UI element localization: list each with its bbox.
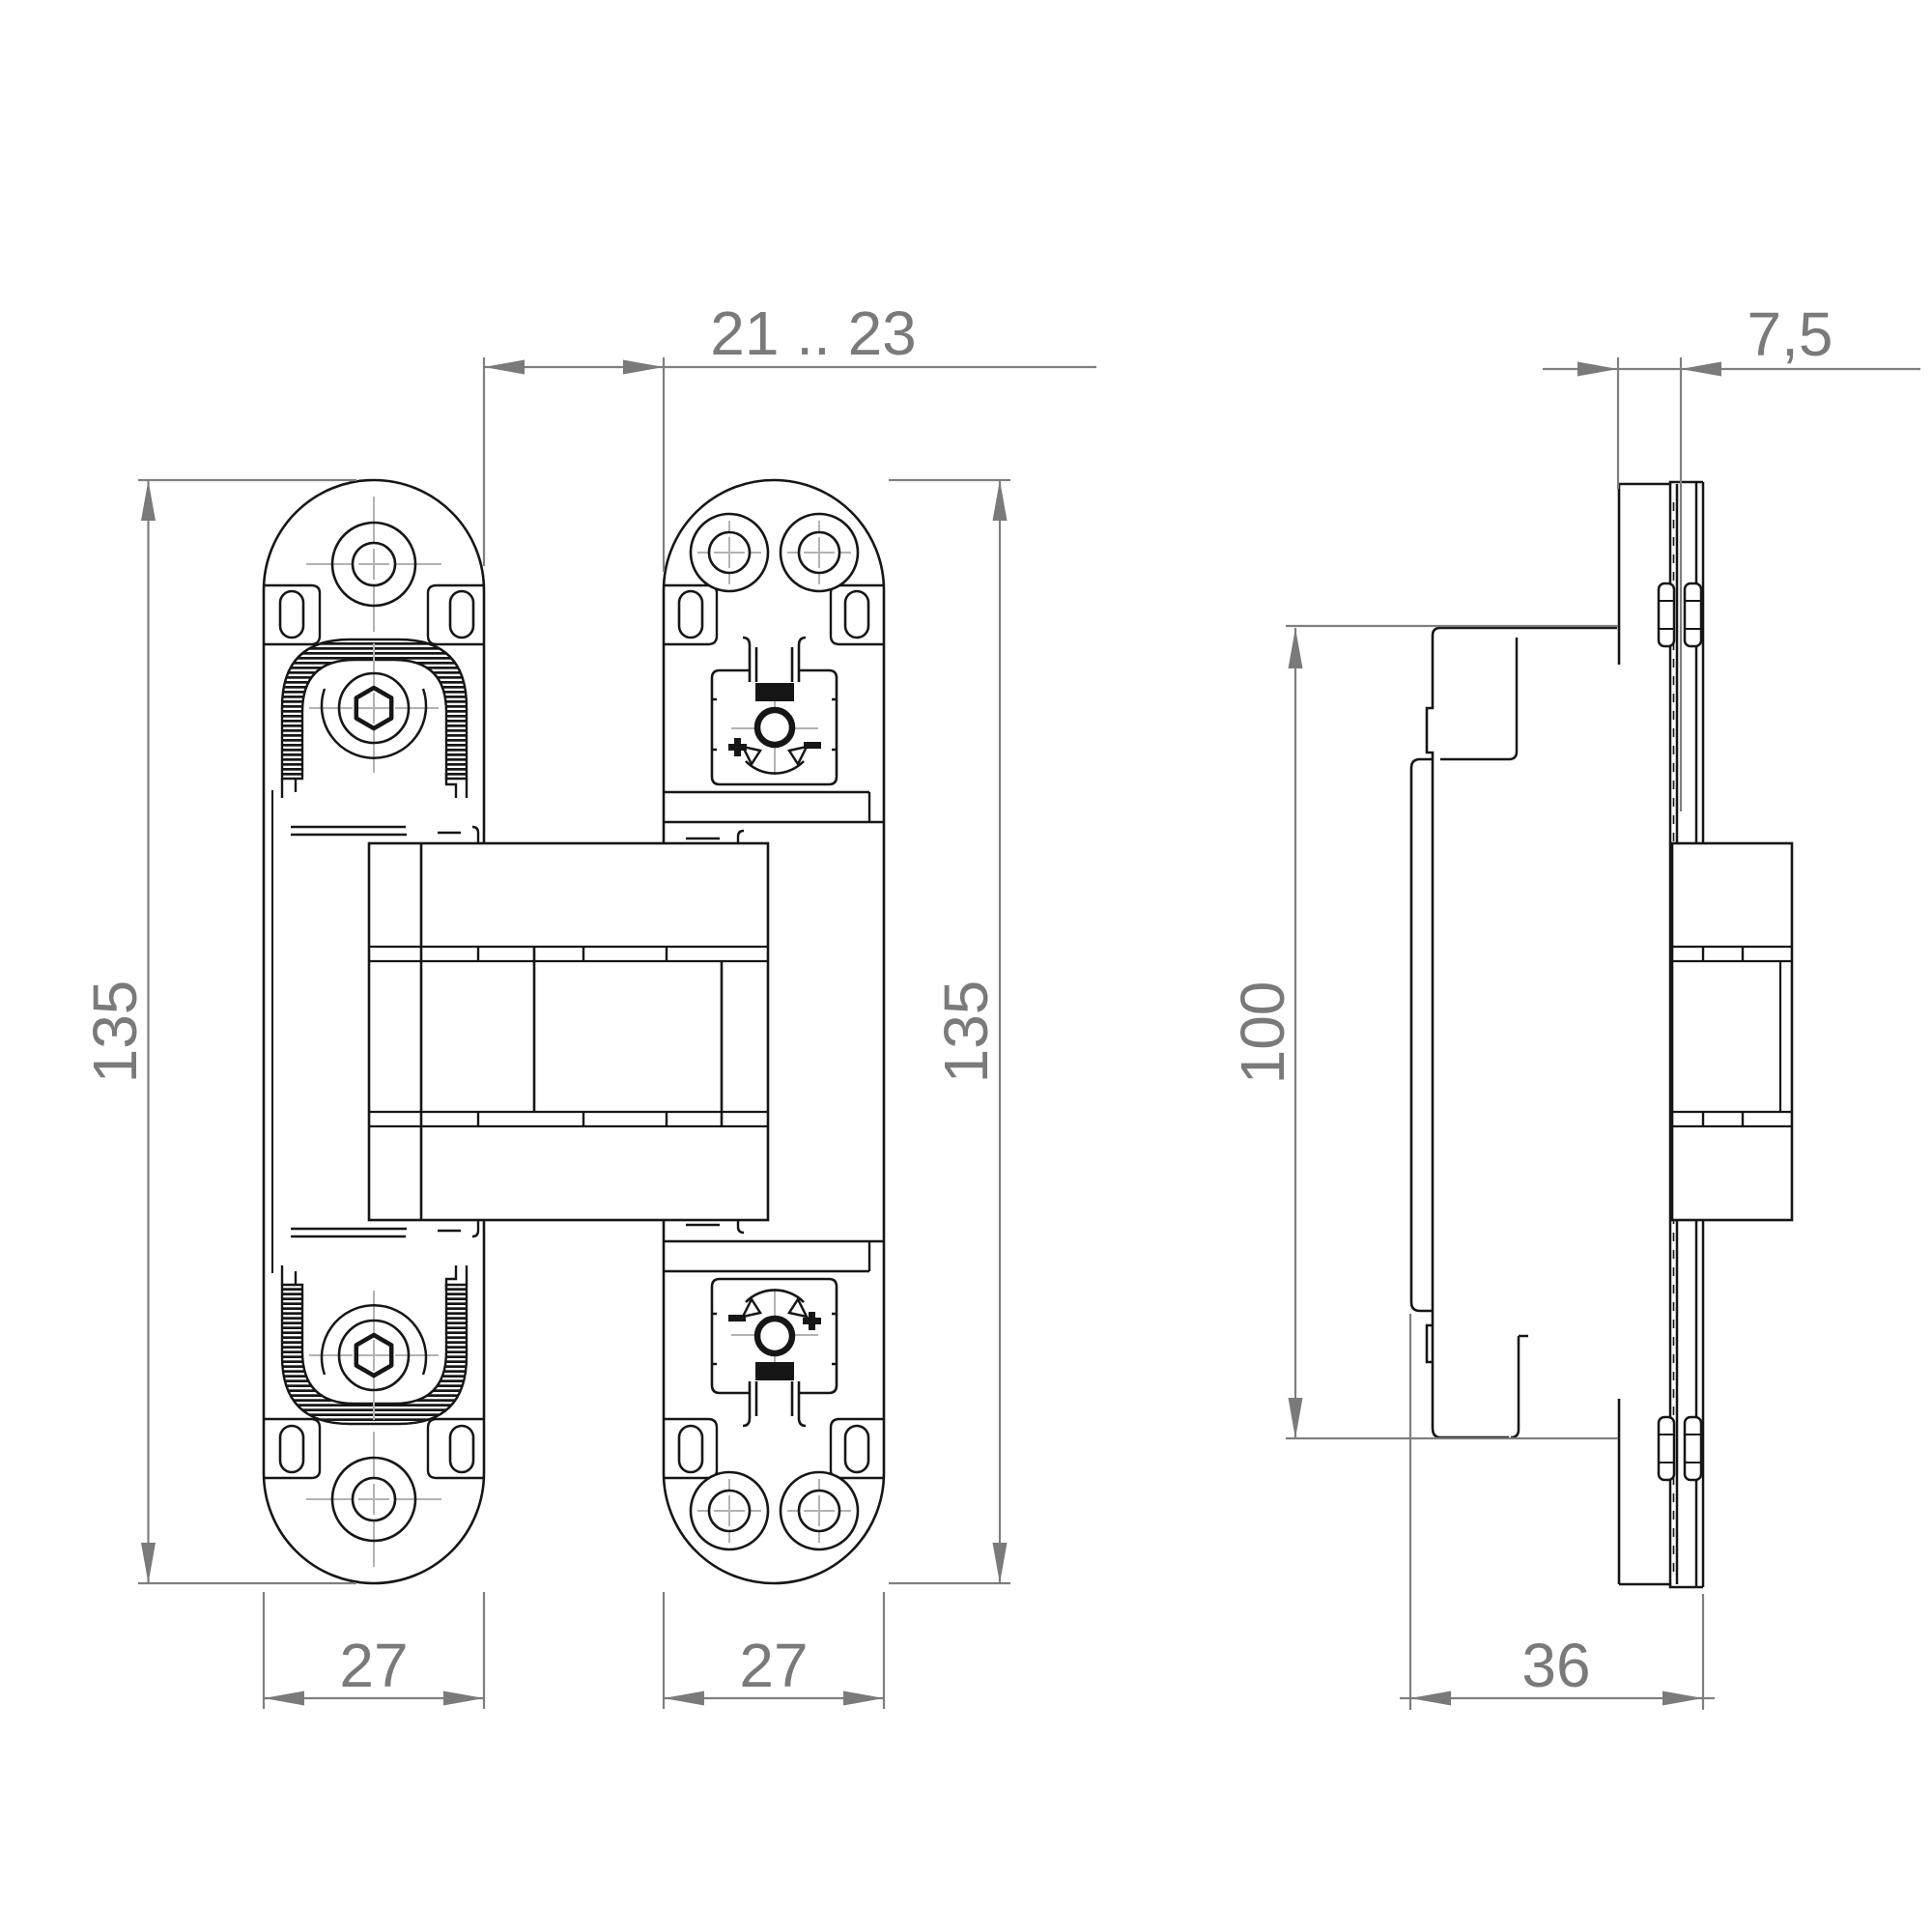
svg-text:135: 135 [931, 980, 1001, 1084]
svg-text:36: 36 [1521, 1631, 1590, 1700]
svg-text:21 .. 23: 21 .. 23 [710, 298, 917, 368]
svg-text:27: 27 [339, 1631, 408, 1700]
svg-text:135: 135 [80, 980, 150, 1084]
svg-text:7,5: 7,5 [1747, 299, 1833, 369]
svg-text:100: 100 [1228, 981, 1297, 1085]
svg-text:27: 27 [739, 1631, 808, 1700]
